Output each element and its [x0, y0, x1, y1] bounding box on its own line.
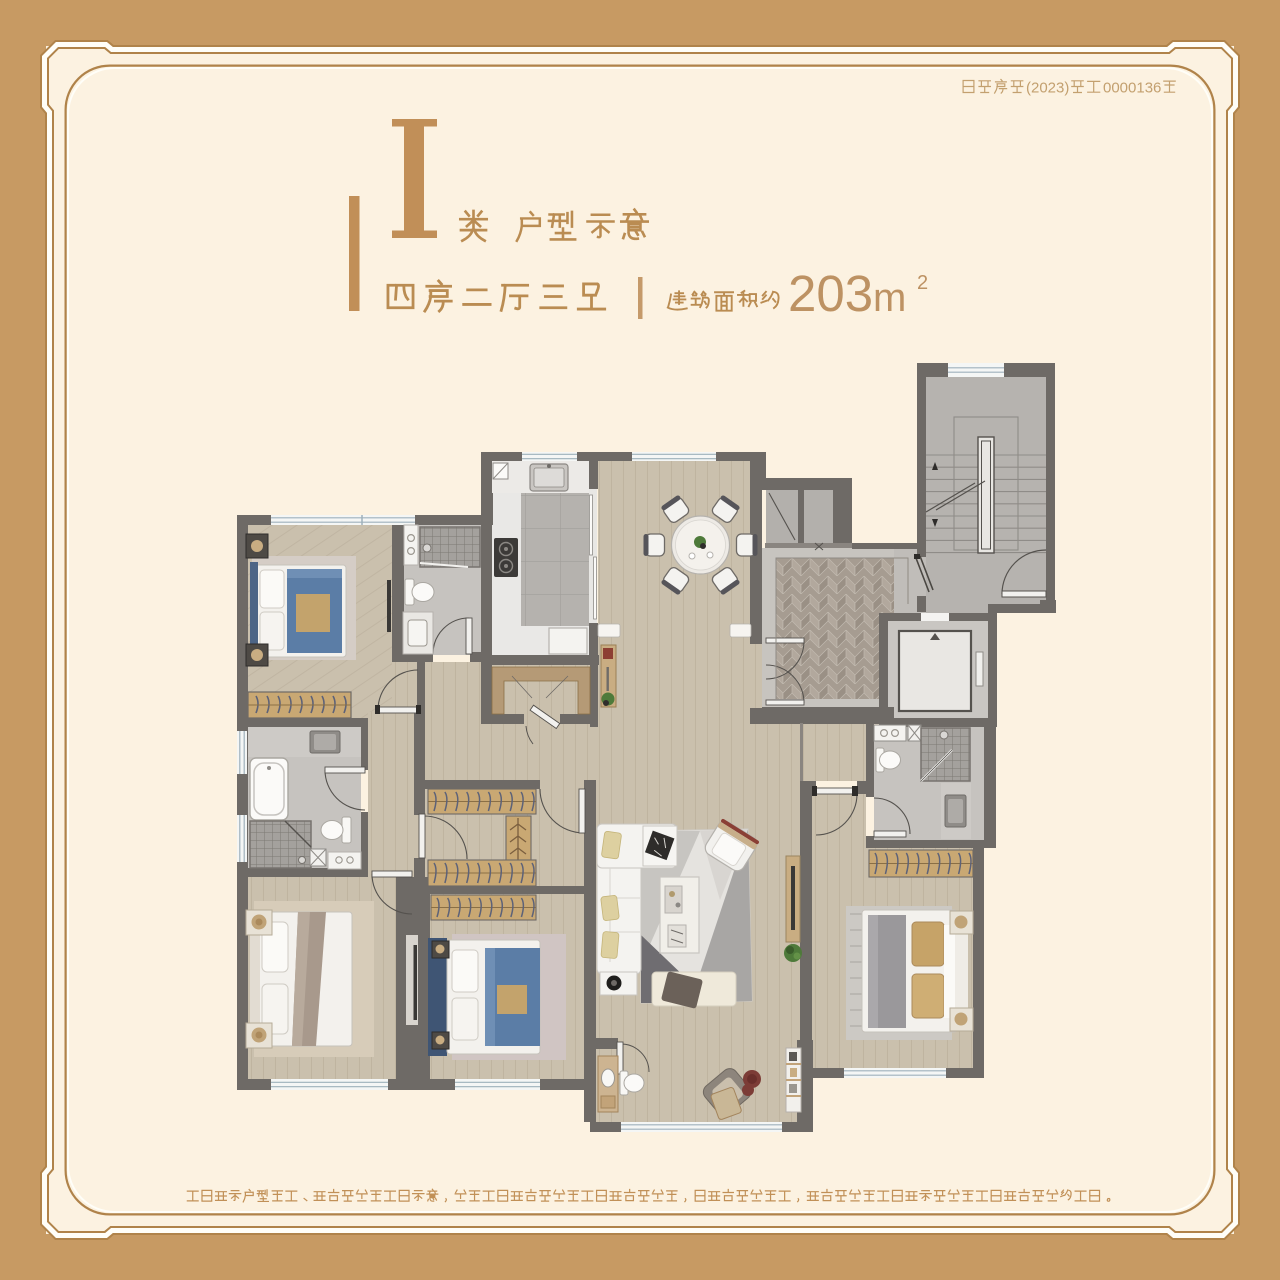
svg-text:0000136: 0000136 [1103, 80, 1161, 97]
svg-text:2: 2 [917, 272, 928, 294]
svg-text:m: m [873, 276, 906, 320]
svg-text:203: 203 [788, 265, 873, 322]
svg-text:(2023): (2023) [1026, 80, 1069, 97]
